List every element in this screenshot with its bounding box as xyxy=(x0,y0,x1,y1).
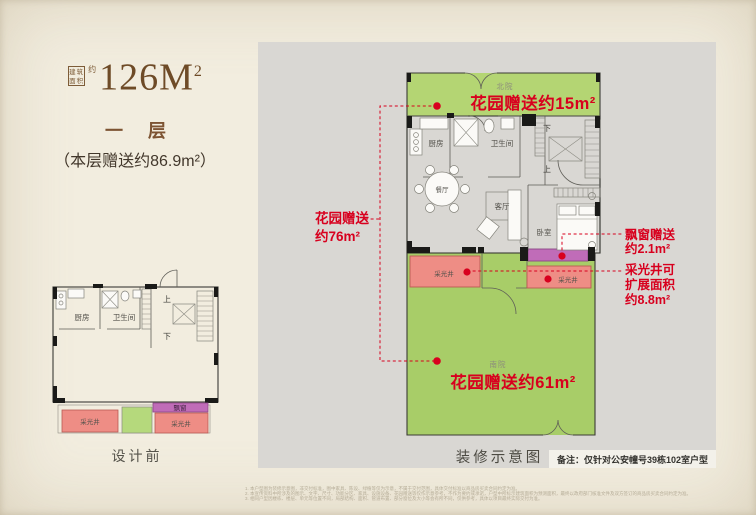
bay-window-label-line1: 飘窗赠送 xyxy=(625,227,676,242)
area-approx-char: 约 xyxy=(88,64,96,75)
garden-west-label-line1: 花园赠送 xyxy=(315,210,369,226)
marker-dot xyxy=(558,252,565,259)
room-label-light-well: 采光井 xyxy=(558,275,578,284)
disclaimer-line: 3. 相同户型因楼栋、楼层、单元等位置不同，局部结构、面积、管道布置、部分窗位及… xyxy=(245,496,730,501)
marker-dot xyxy=(433,357,441,365)
marker-dot xyxy=(544,275,551,282)
area-superscript: 2 xyxy=(194,63,203,80)
north-yard-label: 北院 xyxy=(497,81,514,91)
stairs-and-elevator xyxy=(549,120,600,197)
stair-up-label: 上 xyxy=(543,165,551,174)
garden-south-label: 花园赠送约61m² xyxy=(450,372,576,392)
garden-west-label-line2: 约76m² xyxy=(315,228,361,244)
south-yard-label: 南院 xyxy=(490,359,507,369)
area-value: 126M2 xyxy=(99,52,203,98)
room-label-bedroom: 卧室 xyxy=(537,227,552,237)
lightwell-label-line3: 约8.8m² xyxy=(625,292,670,307)
small-floor-plan: 厨房 卫生间 上 下 采光井 采光井 飘窗 xyxy=(45,258,225,440)
floor-label: 一 层 xyxy=(28,117,243,143)
room-label-dining: 餐厅 xyxy=(436,185,450,194)
before-design-caption: 设计前 xyxy=(83,446,188,466)
floor-bonus-label: （本层赠送约86.9m²） xyxy=(10,147,260,171)
note-label: 备注：仅针对公安幢号39栋102室户型 xyxy=(549,450,716,468)
room-label-bathroom: 卫生间 xyxy=(113,312,136,322)
disclaimer: 1. 本户型图为装修示意图，非交付标准，图中家具、陈设、绿植等仅为示意，不属于交… xyxy=(245,486,730,501)
marker-dot xyxy=(433,102,441,110)
bay-window-strip xyxy=(528,249,588,261)
room-label-living: 客厅 xyxy=(495,201,510,211)
room-label-bathroom: 卫生间 xyxy=(491,138,514,148)
marker-dot xyxy=(463,268,470,275)
area-unit-box: 建筑面积 xyxy=(68,66,85,86)
stair-down-label: 下 xyxy=(163,332,171,341)
room-label-bay-window: 飘窗 xyxy=(174,403,187,412)
area-title: 建筑面积 约 126M2 xyxy=(28,52,243,98)
main-floor-plan: 厨房 卫生间 下 上 餐厅 客厅 卧室 采光井 采光井 北院 南院 xyxy=(258,42,716,468)
room-label-light-well: 采光井 xyxy=(80,417,100,426)
small-garden-strip xyxy=(122,407,152,433)
lightwell-label-line2: 扩展面积 xyxy=(625,277,676,292)
room-label-light-well: 采光井 xyxy=(434,269,454,278)
room-label-light-well: 采光井 xyxy=(171,419,191,428)
main-panel: 厨房 卫生间 下 上 餐厅 客厅 卧室 采光井 采光井 北院 南院 xyxy=(258,42,716,468)
lightwell-label-line1: 采光井可 xyxy=(624,262,676,277)
stair-down-label: 下 xyxy=(543,124,551,133)
brochure-page: 建筑面积 约 126M2 一 层 （本层赠送约86.9m²） xyxy=(0,0,756,515)
room-label-kitchen: 厨房 xyxy=(75,312,90,322)
garden-north-label: 花园赠送约15m² xyxy=(470,93,596,113)
stair-up-label: 上 xyxy=(163,295,171,304)
bay-window-label-line2: 约2.1m² xyxy=(625,241,670,256)
room-label-kitchen: 厨房 xyxy=(429,138,444,148)
furniture xyxy=(410,118,597,250)
area-number: 126M xyxy=(99,57,194,99)
